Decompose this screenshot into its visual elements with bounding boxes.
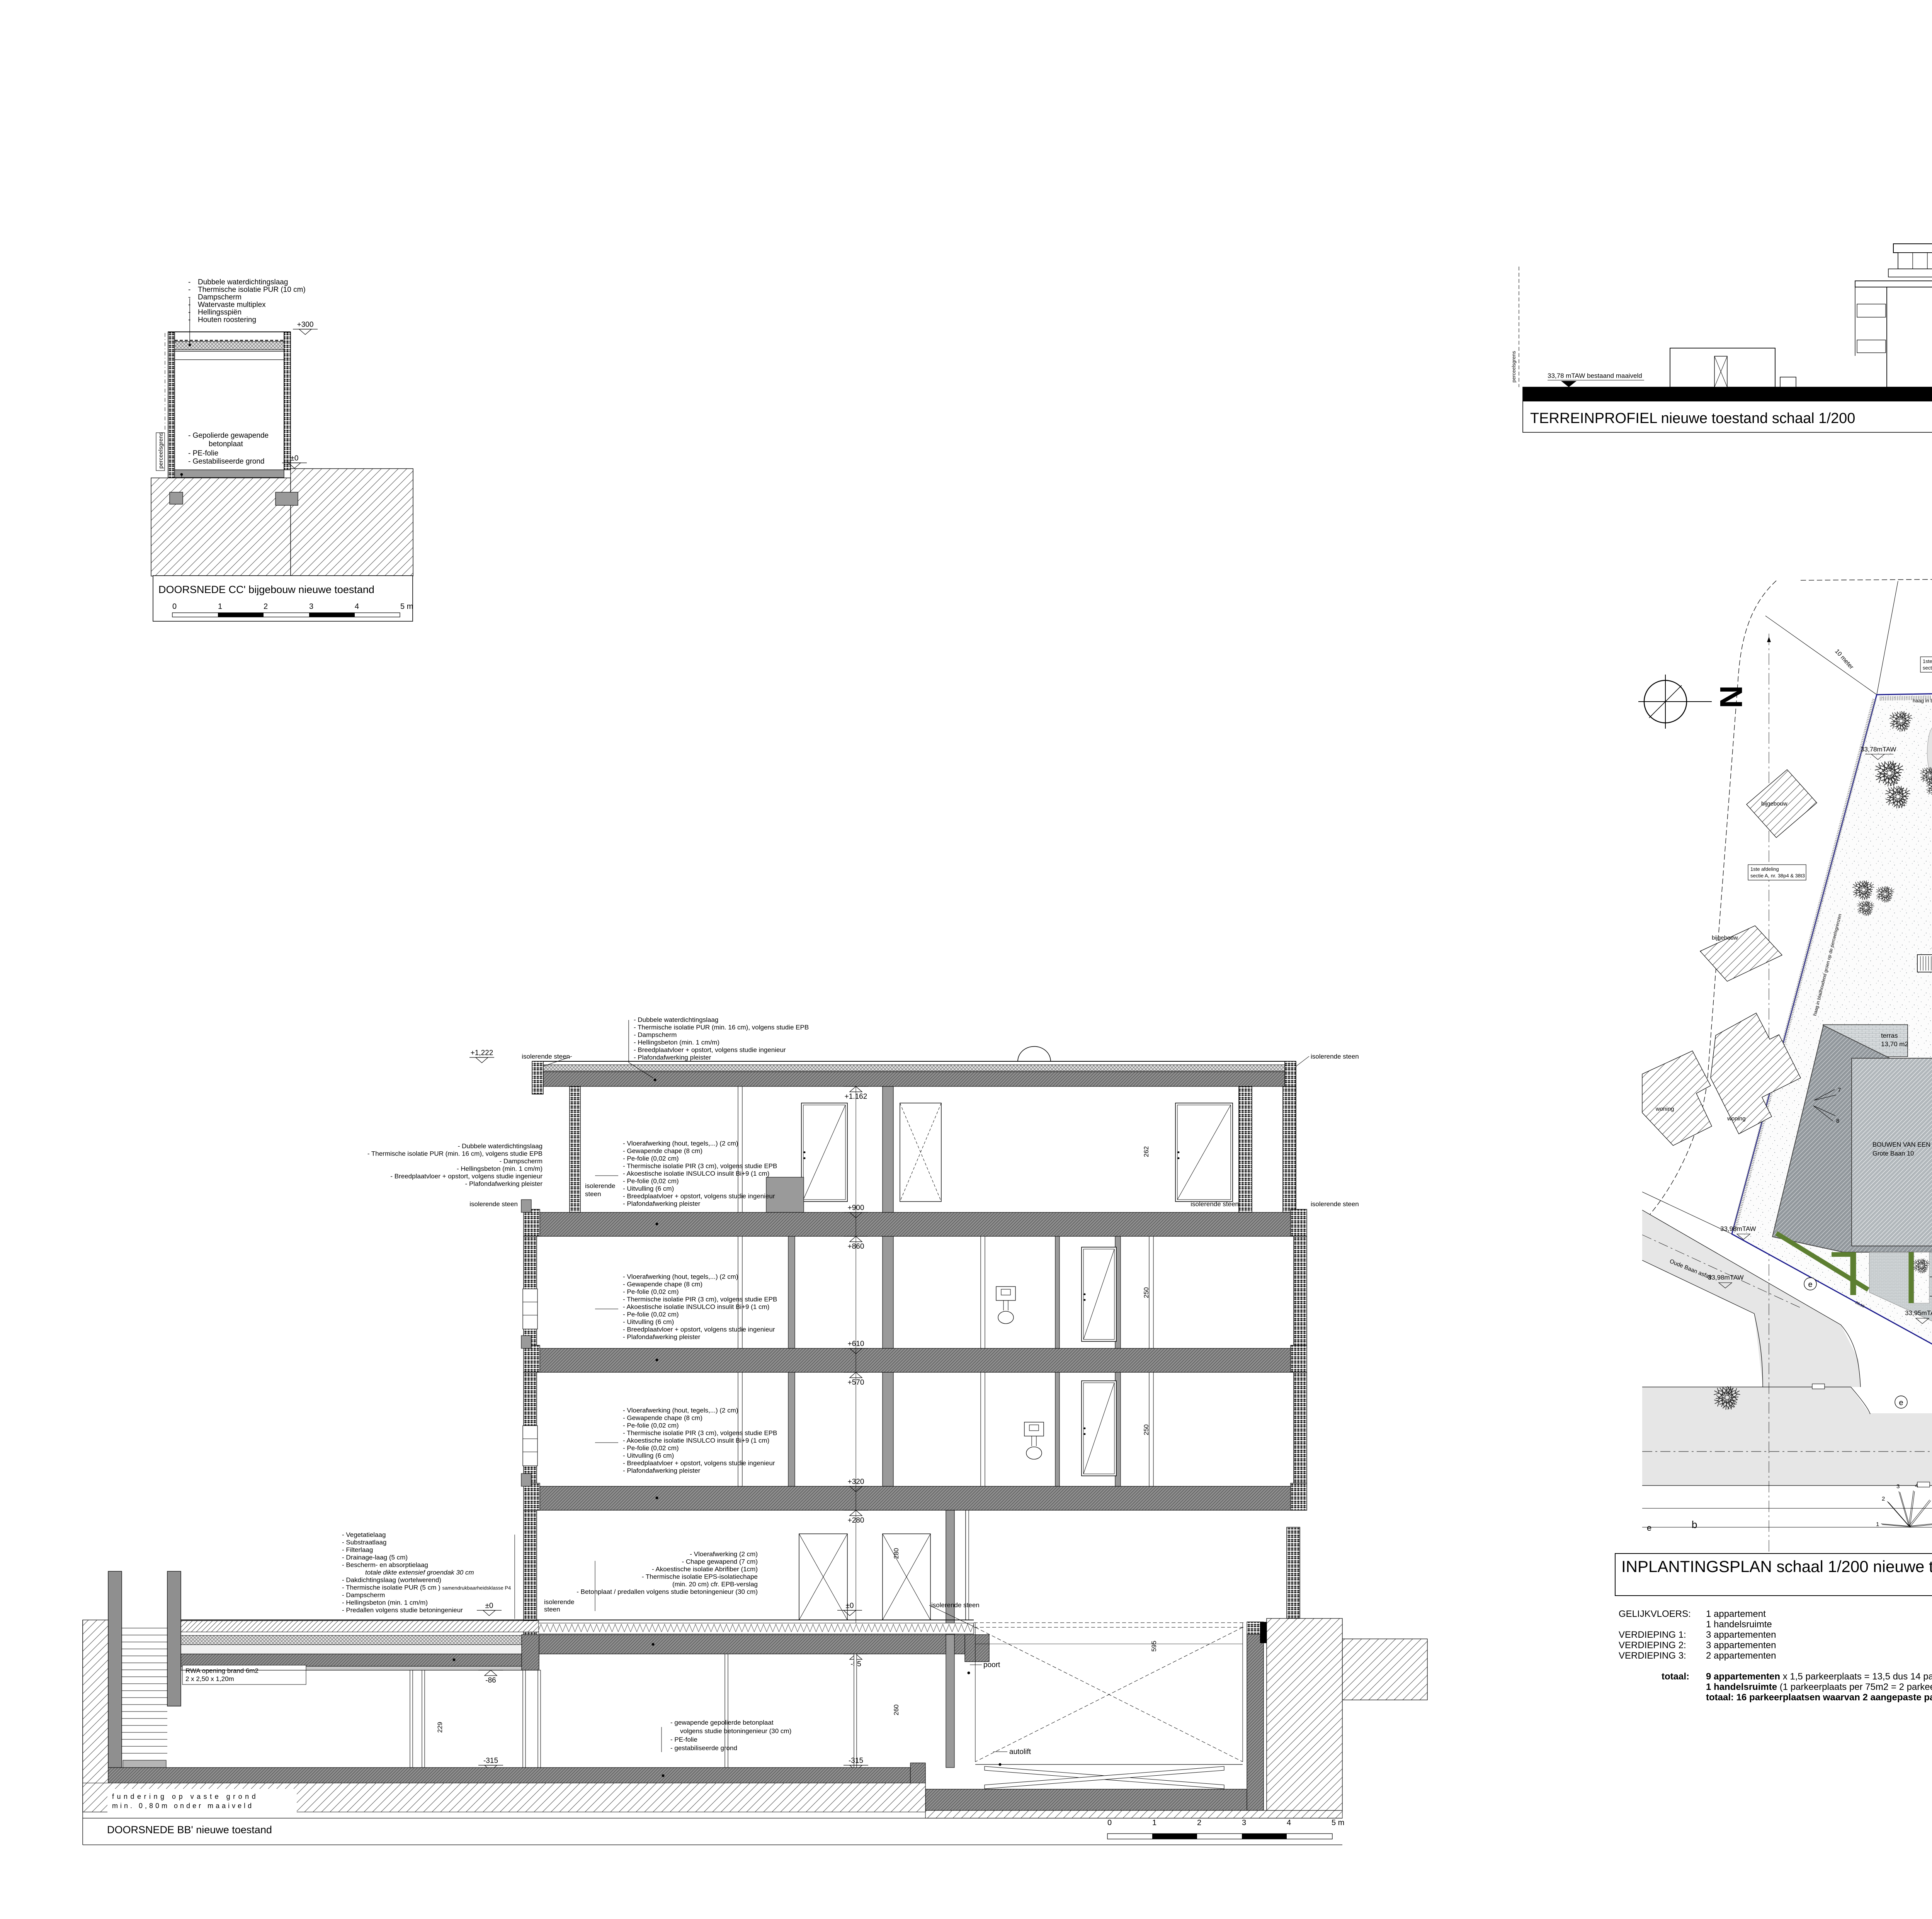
svg-text:- Hellingsbeton (min. 1 cm/m): - Hellingsbeton (min. 1 cm/m) bbox=[634, 1039, 719, 1046]
svg-text:1: 1 bbox=[218, 602, 222, 611]
svg-text:- Akoestische isolatie Abrifi: - Akoestische isolatie Abrifiber (1cm) bbox=[652, 1565, 758, 1573]
svg-text:- Plafondafwerking pleister: - Plafondafwerking pleister bbox=[634, 1054, 711, 1061]
svg-text:- Thermische isolatie PIR (3 c: - Thermische isolatie PIR (3 cm), volgen… bbox=[623, 1296, 777, 1303]
svg-text:isolerende steen: isolerende steen bbox=[1190, 1200, 1239, 1208]
svg-text:- Uitvulling (6 cm): - Uitvulling (6 cm) bbox=[623, 1318, 674, 1326]
svg-text:Watervaste multiplex: Watervaste multiplex bbox=[198, 301, 266, 309]
svg-text:1ste afdeling: 1ste afdeling bbox=[1923, 658, 1932, 664]
svg-text:- Dubbele waterdichtingslaag: - Dubbele waterdichtingslaag bbox=[458, 1142, 543, 1150]
svg-text:b: b bbox=[1692, 1519, 1697, 1530]
svg-text:13,70 m2: 13,70 m2 bbox=[1881, 1040, 1908, 1048]
svg-text:- Hellingsbeton (min. 1 cm/m): - Hellingsbeton (min. 1 cm/m) bbox=[342, 1599, 428, 1606]
svg-text:262: 262 bbox=[1143, 1146, 1150, 1157]
svg-text:4: 4 bbox=[1287, 1819, 1291, 1827]
svg-text:Houten roostering: Houten roostering bbox=[198, 316, 256, 324]
svg-text:min. 0,80m onder maaiveld: min. 0,80m onder maaiveld bbox=[112, 1802, 254, 1810]
svg-text:1: 1 bbox=[1876, 1521, 1879, 1528]
svg-text:sectie A, nr. 38z4: sectie A, nr. 38z4 bbox=[1923, 665, 1932, 671]
svg-text:280: 280 bbox=[893, 1548, 900, 1559]
svg-text:- Thermische isolatie PUR (min: - Thermische isolatie PUR (min. 16 cm), … bbox=[634, 1024, 809, 1031]
svg-text:0: 0 bbox=[172, 602, 177, 611]
svg-text:VERDIEPING 3:: VERDIEPING 3: bbox=[1619, 1650, 1686, 1661]
svg-text:+300: +300 bbox=[297, 321, 314, 329]
svg-text:-86: -86 bbox=[485, 1676, 496, 1684]
svg-text:- gewapende gepolierde betonpl: - gewapende gepolierde betonplaat bbox=[670, 1719, 774, 1726]
svg-text:- Pe-folie (0,02 cm): - Pe-folie (0,02 cm) bbox=[623, 1155, 679, 1162]
svg-text:- Breedplaatvloer + opstort, v: - Breedplaatvloer + opstort, volgens stu… bbox=[390, 1173, 543, 1180]
svg-text:- Akoestische isolatie INSULCO: - Akoestische isolatie INSULCO insulit B… bbox=[623, 1437, 769, 1444]
svg-text:- Vegetatielaag: - Vegetatielaag bbox=[342, 1531, 386, 1538]
svg-text:haag in bladhoudend groen op d: haag in bladhoudend groen op de perceels… bbox=[1913, 698, 1932, 704]
svg-text:33,98mTAW: 33,98mTAW bbox=[1720, 1225, 1756, 1232]
svg-text:- Plafondafwerking pleister: - Plafondafwerking pleister bbox=[623, 1200, 701, 1207]
svg-text:sectie A, nr. 38p4 & 38t3: sectie A, nr. 38p4 & 38t3 bbox=[1750, 873, 1805, 879]
svg-text:RWA opening brand 6m2: RWA opening brand 6m2 bbox=[185, 1667, 259, 1674]
svg-text:- Vloerafwerking (hout, tegels: - Vloerafwerking (hout, tegels,...) (2 c… bbox=[623, 1273, 738, 1280]
svg-text:3: 3 bbox=[1896, 1483, 1900, 1490]
svg-text:woning: woning bbox=[1727, 1115, 1746, 1122]
svg-text:- PE-folie: - PE-folie bbox=[670, 1736, 697, 1743]
svg-text:Dubbele waterdichtingslaag: Dubbele waterdichtingslaag bbox=[198, 278, 288, 286]
svg-text:- Dampscherm: - Dampscherm bbox=[342, 1591, 385, 1599]
svg-text:- Pe-folie (0,02 cm): - Pe-folie (0,02 cm) bbox=[623, 1311, 679, 1318]
svg-text:TERREINPROFIEL nieuwe toestand: TERREINPROFIEL nieuwe toestand schaal 1/… bbox=[1530, 410, 1855, 427]
svg-text:- Drainage-laag (5 cm): - Drainage-laag (5 cm) bbox=[342, 1554, 408, 1561]
svg-text:2 x 2,50 x 1,20m: 2 x 2,50 x 1,20m bbox=[185, 1675, 234, 1683]
svg-text:- Thermische isolatie PUR (min: - Thermische isolatie PUR (min. 16 cm), … bbox=[367, 1150, 543, 1158]
svg-text:1: 1 bbox=[1152, 1819, 1156, 1827]
svg-text:- Gewapende chape (8 cm): - Gewapende chape (8 cm) bbox=[623, 1414, 702, 1422]
svg-text:- Substraatlaag: - Substraatlaag bbox=[342, 1539, 386, 1546]
svg-text:Grote Baan 10: Grote Baan 10 bbox=[1872, 1150, 1914, 1157]
svg-text:isolerende steen: isolerende steen bbox=[931, 1601, 980, 1609]
svg-text:DOORSNEDE CC' bijgebouw nieuwe: DOORSNEDE CC' bijgebouw nieuwe toestand bbox=[158, 584, 374, 595]
svg-text:- PE-folie: - PE-folie bbox=[188, 449, 218, 457]
svg-text:- Dampscherm: - Dampscherm bbox=[500, 1158, 543, 1165]
svg-text:-315: -315 bbox=[483, 1757, 498, 1765]
svg-text:- Gepolierde gewapende: - Gepolierde gewapende bbox=[188, 432, 269, 440]
svg-text:- Breedplaatvloer + opstort, v: - Breedplaatvloer + opstort, volgens stu… bbox=[623, 1326, 775, 1333]
svg-text:isolerende steen: isolerende steen bbox=[1311, 1053, 1359, 1060]
svg-text:fundering op vaste grond: fundering op vaste grond bbox=[112, 1793, 259, 1800]
svg-text:autolift: autolift bbox=[1009, 1748, 1031, 1756]
svg-text:0: 0 bbox=[1107, 1819, 1112, 1827]
svg-text:- Gewapende chape (8 cm): - Gewapende chape (8 cm) bbox=[623, 1147, 702, 1155]
svg-text:1 handelsruimte (1 parkeerplaa: 1 handelsruimte (1 parkeerplaats per 75m… bbox=[1706, 1682, 1932, 1692]
svg-text:- Akoestische isolatie INSULCO: - Akoestische isolatie INSULCO insulit B… bbox=[623, 1303, 769, 1310]
svg-text:- Thermische isolatie PIR (3 c: - Thermische isolatie PIR (3 cm), volgen… bbox=[623, 1429, 777, 1437]
svg-text:3: 3 bbox=[309, 602, 313, 611]
svg-text:33,78mTAW: 33,78mTAW bbox=[1861, 746, 1896, 753]
svg-text:bijgebouw: bijgebouw bbox=[1761, 801, 1787, 807]
svg-text:- Vloerafwerking (hout, tegels: - Vloerafwerking (hout, tegels,...) (2 c… bbox=[623, 1140, 738, 1147]
svg-text:- Pe-folie (0,02 cm): - Pe-folie (0,02 cm) bbox=[623, 1178, 679, 1185]
svg-text:totaal: 16 parkeerplaatsen waa: totaal: 16 parkeerplaatsen waarvan 2 aan… bbox=[1706, 1692, 1932, 1703]
svg-text:-: - bbox=[188, 278, 190, 286]
svg-text:bijgebouw: bijgebouw bbox=[1712, 935, 1738, 941]
svg-text:- Thermische isolatie PUR (5 c: - Thermische isolatie PUR (5 cm ) samend… bbox=[342, 1584, 511, 1591]
svg-text:250: 250 bbox=[1143, 1424, 1150, 1435]
svg-text:isolerende steen: isolerende steen bbox=[522, 1053, 570, 1060]
svg-text:woning: woning bbox=[1655, 1106, 1674, 1112]
svg-text:3 appartementen: 3 appartementen bbox=[1706, 1640, 1776, 1650]
svg-text:±0: ±0 bbox=[846, 1602, 854, 1610]
svg-text:VERDIEPING 2:: VERDIEPING 2: bbox=[1619, 1640, 1686, 1650]
svg-text:2: 2 bbox=[1882, 1496, 1885, 1502]
svg-text:- Vloerafwerking (2 cm): - Vloerafwerking (2 cm) bbox=[690, 1550, 758, 1558]
svg-text:- Filterlaag: - Filterlaag bbox=[342, 1546, 373, 1554]
svg-text:- Pe-folie (0,02 cm): - Pe-folie (0,02 cm) bbox=[623, 1445, 679, 1452]
svg-text:- Plafondafwerking pleister: - Plafondafwerking pleister bbox=[623, 1467, 701, 1474]
svg-text:perceelsgrens: perceelsgrens bbox=[1511, 351, 1517, 382]
svg-text:- Hellingsbeton (min. 1 cm/m): - Hellingsbeton (min. 1 cm/m) bbox=[457, 1165, 543, 1173]
svg-text:- Plafondafwerking pleister: - Plafondafwerking pleister bbox=[465, 1180, 543, 1188]
svg-text:2 appartementen: 2 appartementen bbox=[1706, 1650, 1776, 1661]
svg-text:e: e bbox=[1899, 1399, 1903, 1407]
svg-text:1ste afdeling: 1ste afdeling bbox=[1750, 866, 1779, 872]
svg-text:e: e bbox=[1808, 1280, 1812, 1289]
svg-text:- Thermische isolatie EPS-iso: - Thermische isolatie EPS-isolatiechape bbox=[642, 1573, 758, 1581]
svg-text:INPLANTINGSPLAN schaal 1/200 n: INPLANTINGSPLAN schaal 1/200 nieuwe toes… bbox=[1621, 1557, 1932, 1576]
svg-text:- Dubbele waterdichtingslaag: - Dubbele waterdichtingslaag bbox=[634, 1016, 718, 1023]
svg-text:terras: terras bbox=[1881, 1032, 1898, 1039]
svg-text:±0: ±0 bbox=[485, 1602, 493, 1610]
svg-text:4: 4 bbox=[355, 602, 359, 611]
svg-text:- Vloerafwerking (hout, tegels: - Vloerafwerking (hout, tegels,...) (2 c… bbox=[623, 1407, 738, 1414]
svg-text:totale dikte extensief groenda: totale dikte extensief groendak 30 cm bbox=[365, 1569, 474, 1576]
svg-text:- Breedplaatvloer + opstort, v: - Breedplaatvloer + opstort, volgens stu… bbox=[623, 1193, 775, 1200]
svg-text:steen: steen bbox=[585, 1190, 601, 1198]
svg-text:260: 260 bbox=[893, 1705, 900, 1715]
svg-text:-315: -315 bbox=[849, 1757, 863, 1765]
svg-text:- Predallen volgens studie bet: - Predallen volgens studie betoningenieu… bbox=[342, 1606, 463, 1614]
svg-text:- Betonplaat / predallen volg: - Betonplaat / predallen volgens studie … bbox=[577, 1588, 758, 1596]
svg-text:- gestabiliseerde grond: - gestabiliseerde grond bbox=[670, 1744, 737, 1752]
svg-text:- Bescherm- en absorptielaag: - Bescherm- en absorptielaag bbox=[342, 1561, 428, 1569]
svg-text:229: 229 bbox=[436, 1722, 444, 1733]
svg-text:- Pe-folie (0,02 cm): - Pe-folie (0,02 cm) bbox=[623, 1288, 679, 1295]
svg-text:7: 7 bbox=[1838, 1087, 1841, 1093]
svg-text:-: - bbox=[188, 286, 190, 294]
svg-text:- Plafondafwerking pleister: - Plafondafwerking pleister bbox=[623, 1333, 701, 1341]
svg-text:2: 2 bbox=[1197, 1819, 1201, 1827]
svg-text:poort: poort bbox=[983, 1661, 1000, 1669]
svg-text:(min. 20 cm) cfr. EPB-verslag: (min. 20 cm) cfr. EPB-verslag bbox=[672, 1581, 758, 1588]
svg-text:Hellingsspiën: Hellingsspiën bbox=[198, 308, 241, 316]
svg-text:isolerende steen: isolerende steen bbox=[1311, 1200, 1359, 1208]
svg-text:- Dakdichtingslaag (wortelwere: - Dakdichtingslaag (wortelwerend) bbox=[342, 1576, 441, 1584]
svg-text:9 appartementen x 1,5 parkeerp: 9 appartementen x 1,5 parkeerplaats = 13… bbox=[1706, 1671, 1932, 1682]
svg-text:GELIJKVLOERS:: GELIJKVLOERS: bbox=[1619, 1609, 1691, 1619]
svg-text:1 handelsruimte: 1 handelsruimte bbox=[1706, 1619, 1772, 1630]
svg-text:-: - bbox=[188, 293, 190, 301]
svg-text:- Pe-folie (0,02 cm): - Pe-folie (0,02 cm) bbox=[623, 1422, 679, 1429]
svg-text:8: 8 bbox=[1836, 1118, 1839, 1124]
svg-text:- Chape gewapend (7 cm): - Chape gewapend (7 cm) bbox=[682, 1558, 758, 1565]
svg-text:-: - bbox=[188, 316, 190, 324]
svg-text:33,78 mTAW bestaand maaiveld: 33,78 mTAW bestaand maaiveld bbox=[1548, 372, 1642, 379]
svg-text:250: 250 bbox=[1143, 1287, 1150, 1298]
svg-text:- Breedplaatvloer + opstort, v: - Breedplaatvloer + opstort, volgens stu… bbox=[634, 1046, 786, 1054]
svg-text:totaal:: totaal: bbox=[1662, 1671, 1689, 1682]
svg-text:BOUWEN VAN EEN HANDELSRUIMTE &: BOUWEN VAN EEN HANDELSRUIMTE & 9 APPARTE… bbox=[1872, 1141, 1932, 1148]
svg-text:isolerende steen: isolerende steen bbox=[469, 1200, 518, 1208]
svg-text:Thermische isolatie PUR (10 cm: Thermische isolatie PUR (10 cm) bbox=[198, 286, 306, 294]
svg-text:- Gewapende chape (8 cm): - Gewapende chape (8 cm) bbox=[623, 1281, 702, 1288]
svg-text:5 m: 5 m bbox=[1332, 1819, 1344, 1827]
svg-text:33,98mTAW: 33,98mTAW bbox=[1708, 1274, 1744, 1281]
svg-text:- Dampscherm: - Dampscherm bbox=[634, 1031, 677, 1039]
svg-text:+1,222: +1,222 bbox=[471, 1049, 493, 1057]
svg-text:N: N bbox=[1713, 685, 1748, 708]
svg-text:betonplaat: betonplaat bbox=[209, 440, 243, 448]
svg-text:-: - bbox=[188, 301, 190, 309]
svg-text:DOORSNEDE BB' nieuwe toestand: DOORSNEDE BB' nieuwe toestand bbox=[107, 1824, 272, 1836]
svg-text:2: 2 bbox=[264, 602, 268, 611]
svg-text:VERDIEPING 1:: VERDIEPING 1: bbox=[1619, 1630, 1686, 1640]
svg-text:3 appartementen: 3 appartementen bbox=[1706, 1630, 1776, 1640]
svg-text:- Breedplaatvloer + opstort, v: - Breedplaatvloer + opstort, volgens stu… bbox=[623, 1460, 775, 1467]
svg-text:- Akoestische isolatie INSULCO: - Akoestische isolatie INSULCO insulit B… bbox=[623, 1170, 769, 1177]
svg-text:±0: ±0 bbox=[291, 454, 299, 462]
svg-text:- Gestabiliseerde grond: - Gestabiliseerde grond bbox=[188, 457, 265, 466]
svg-text:-: - bbox=[188, 308, 190, 316]
svg-text:isolerende: isolerende bbox=[585, 1182, 615, 1190]
svg-text:Dampscherm: Dampscherm bbox=[198, 293, 241, 301]
svg-text:- Thermische isolatie PIR (3 c: - Thermische isolatie PIR (3 cm), volgen… bbox=[623, 1163, 777, 1170]
svg-text:- Uitvulling (6 cm): - Uitvulling (6 cm) bbox=[623, 1185, 674, 1192]
svg-text:isolerende: isolerende bbox=[544, 1598, 574, 1606]
svg-text:33,95mTAW: 33,95mTAW bbox=[1905, 1309, 1932, 1317]
svg-text:steen: steen bbox=[544, 1606, 560, 1613]
svg-text:1 appartement: 1 appartement bbox=[1706, 1609, 1766, 1619]
svg-text:3: 3 bbox=[1242, 1819, 1246, 1827]
svg-text:5 m: 5 m bbox=[400, 602, 413, 611]
svg-text:4: 4 bbox=[1915, 1482, 1918, 1489]
svg-text:- Uitvulling (6 cm): - Uitvulling (6 cm) bbox=[623, 1452, 674, 1459]
svg-text:perceelsgrens: perceelsgrens bbox=[158, 432, 164, 469]
svg-text:huidig profiel gelijk aan toek: huidig profiel gelijk aan toekomstig pro… bbox=[1812, 386, 1897, 391]
svg-text:595: 595 bbox=[1150, 1641, 1158, 1652]
svg-text:e: e bbox=[1647, 1523, 1651, 1533]
svg-text:volgens studie betoningenieur: volgens studie betoningenieur (30 cm) bbox=[680, 1727, 791, 1735]
